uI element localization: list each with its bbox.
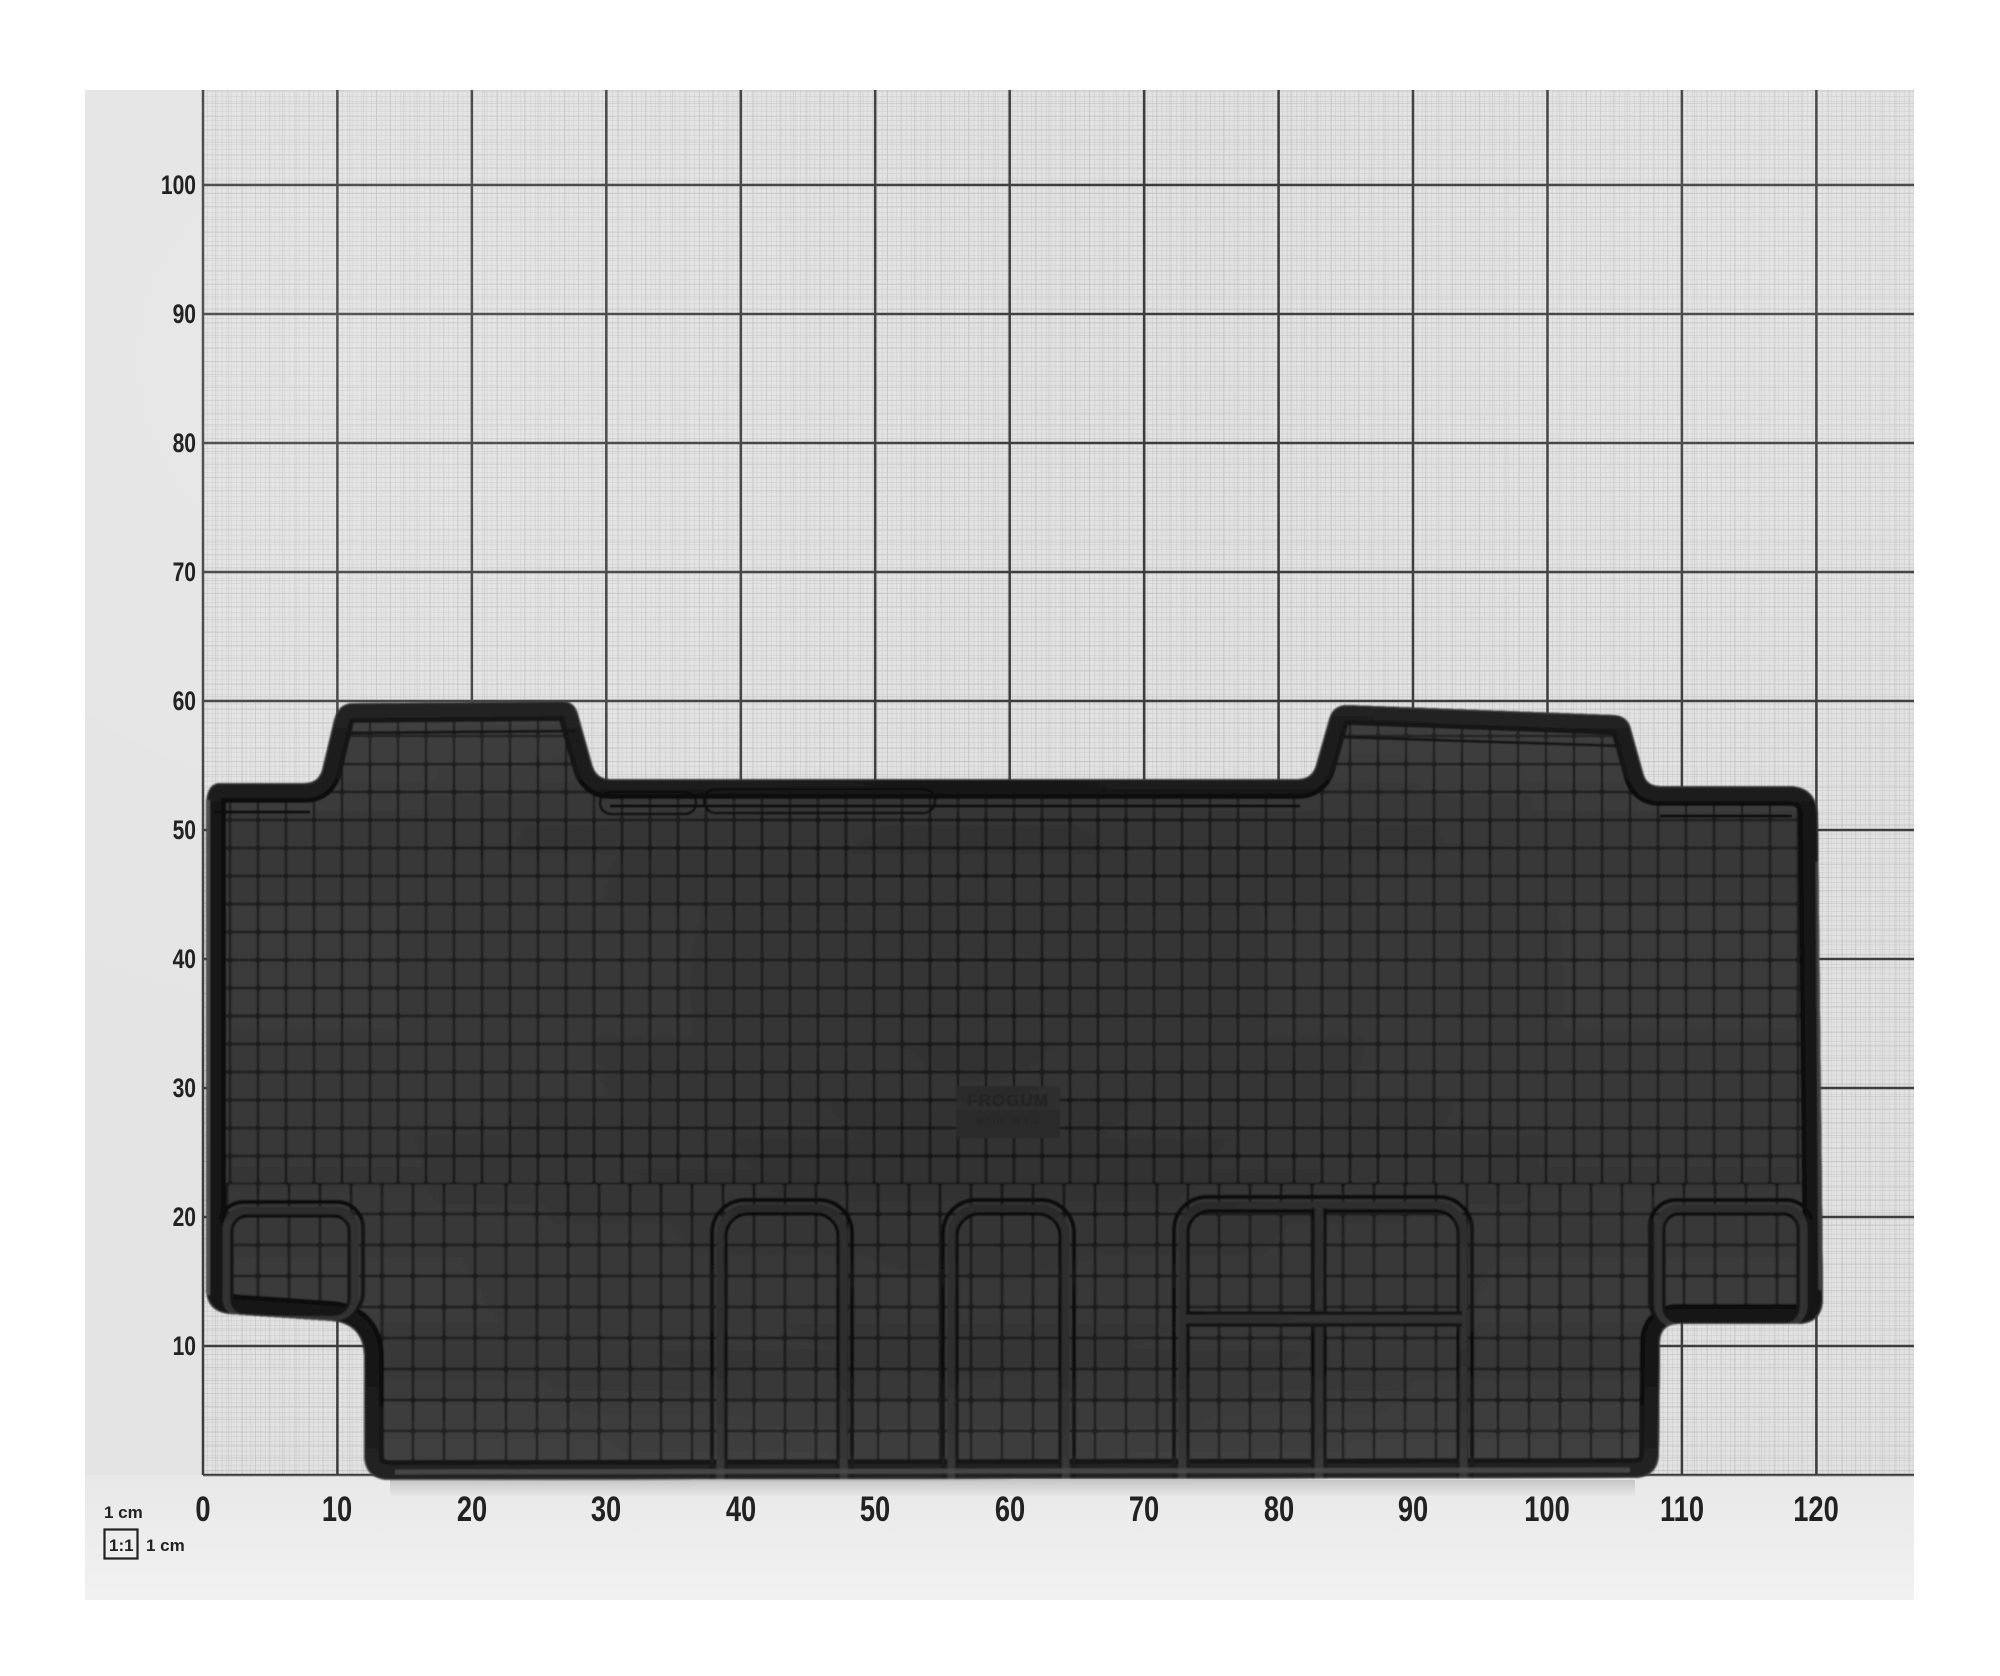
svg-text:10: 10 [173, 1332, 196, 1362]
svg-text:100: 100 [161, 171, 196, 201]
svg-text:40: 40 [173, 945, 196, 975]
svg-text:110: 110 [1660, 1490, 1704, 1529]
svg-text:1 cm: 1 cm [146, 1536, 185, 1555]
svg-text:1 cm: 1 cm [104, 1503, 143, 1522]
svg-text:30: 30 [173, 1074, 196, 1104]
svg-text:1:1: 1:1 [109, 1536, 134, 1555]
svg-text:0: 0 [195, 1490, 210, 1529]
svg-text:120: 120 [1793, 1490, 1839, 1529]
svg-text:10: 10 [322, 1490, 352, 1529]
svg-text:70: 70 [173, 558, 196, 588]
svg-text:90: 90 [173, 300, 196, 330]
svg-text:80: 80 [173, 429, 196, 459]
svg-text:60: 60 [173, 687, 196, 717]
svg-text:20: 20 [173, 1203, 196, 1233]
svg-text:50: 50 [173, 816, 196, 846]
